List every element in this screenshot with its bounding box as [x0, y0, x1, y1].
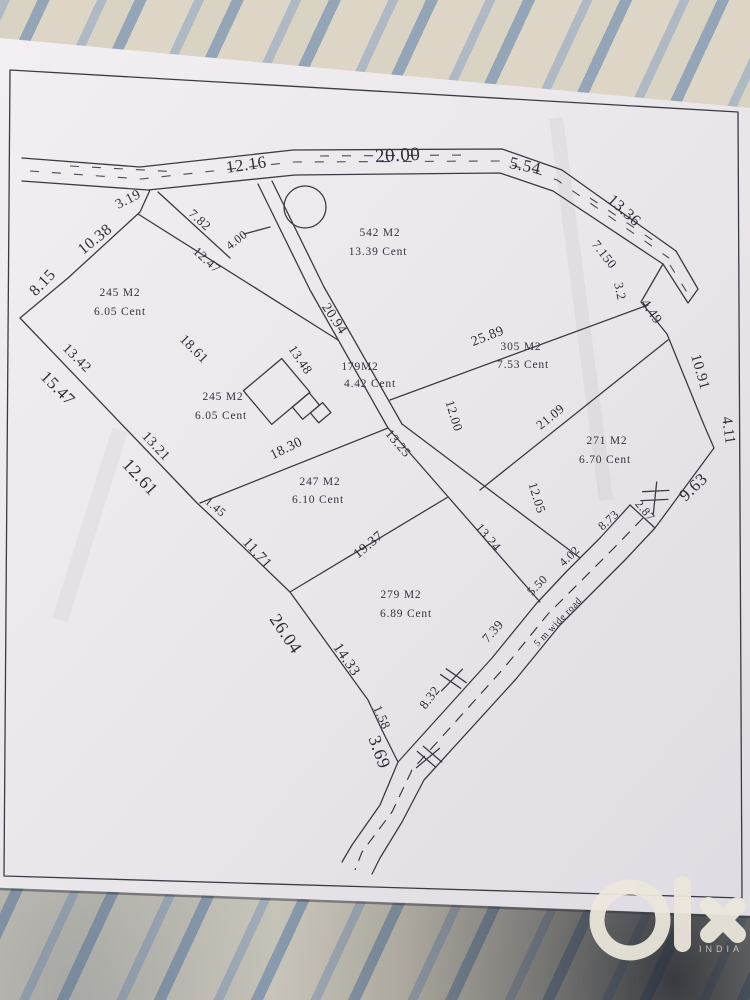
plot-area: 305 M2 [501, 341, 542, 353]
plot-cent: 4.42 Cent [344, 378, 396, 390]
plot-area: 247 M2 [300, 476, 341, 488]
survey-photo: 12.16 20.00 5.54 13.36 7.150 3.2 4.49 10… [0, 0, 750, 1000]
plot-area: 179M2 [341, 361, 378, 373]
plot-area: 542 M2 [360, 227, 401, 239]
plot-cent: 7.53 Cent [497, 359, 549, 371]
olx-india-label: INDIA [699, 944, 743, 954]
olx-l-icon [674, 876, 691, 952]
plot-cent: 6.89 Cent [380, 608, 432, 620]
plot-cent: 6.70 Cent [579, 454, 631, 466]
plot-area: 279 M2 [381, 589, 422, 601]
dim-label: 20.00 [375, 144, 421, 167]
plot-cent: 6.10 Cent [292, 494, 344, 506]
plot-area: 245 M2 [100, 287, 141, 299]
plot-area: 245 M2 [203, 391, 244, 403]
plot-cent: 6.05 Cent [195, 410, 247, 422]
plot-cent: 13.39 Cent [349, 246, 407, 258]
plot-area: 271 M2 [587, 435, 628, 447]
plot-cent: 6.05 Cent [94, 306, 146, 318]
